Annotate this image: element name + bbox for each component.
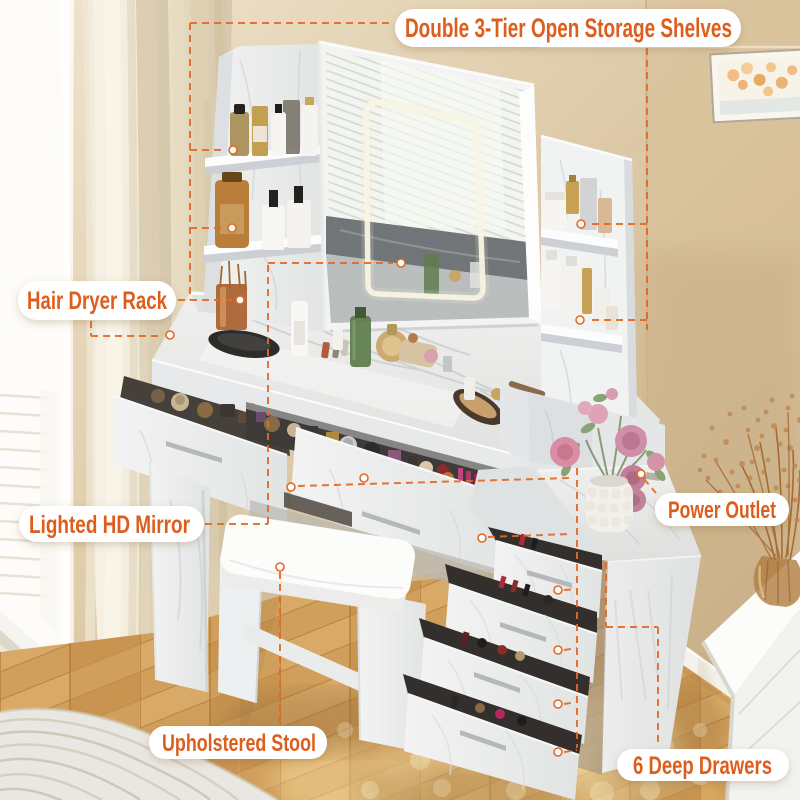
- svg-text:Upholstered Stool: Upholstered Stool: [162, 730, 316, 757]
- svg-text:Lighted HD Mirror: Lighted HD Mirror: [29, 511, 190, 539]
- svg-text:Power Outlet: Power Outlet: [668, 497, 776, 524]
- svg-text:Hair Dryer Rack: Hair Dryer Rack: [27, 287, 167, 315]
- svg-text:Double 3-Tier Open Storage She: Double 3-Tier Open Storage Shelves: [405, 13, 732, 43]
- svg-text:6 Deep Drawers: 6 Deep Drawers: [633, 752, 772, 780]
